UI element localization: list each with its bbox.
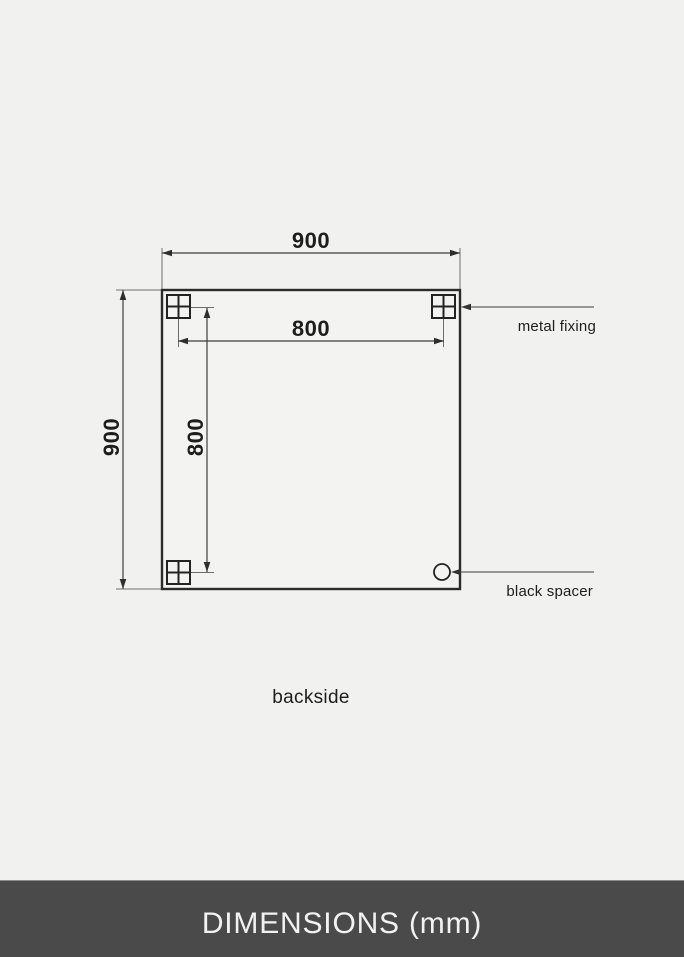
dimension-diagram: 900 800 900 800 metal fixing black space… [0, 0, 684, 880]
callout-leader-lines [452, 307, 594, 572]
dimension-diagram-svg: 900 800 900 800 metal fixing black space… [0, 0, 684, 880]
dim-label-width-900: 900 [292, 228, 330, 253]
dim-label-width-800: 800 [292, 316, 330, 341]
dim-label-height-800: 800 [183, 418, 208, 456]
footer-bar: DIMENSIONS (mm) [0, 880, 684, 957]
metal-fixing-label: metal fixing [518, 318, 596, 335]
footer-title: DIMENSIONS (mm) [202, 897, 482, 941]
backside-label: backside [272, 687, 349, 708]
black-spacer-label: black spacer [506, 583, 593, 600]
dim-label-height-900: 900 [99, 418, 124, 456]
